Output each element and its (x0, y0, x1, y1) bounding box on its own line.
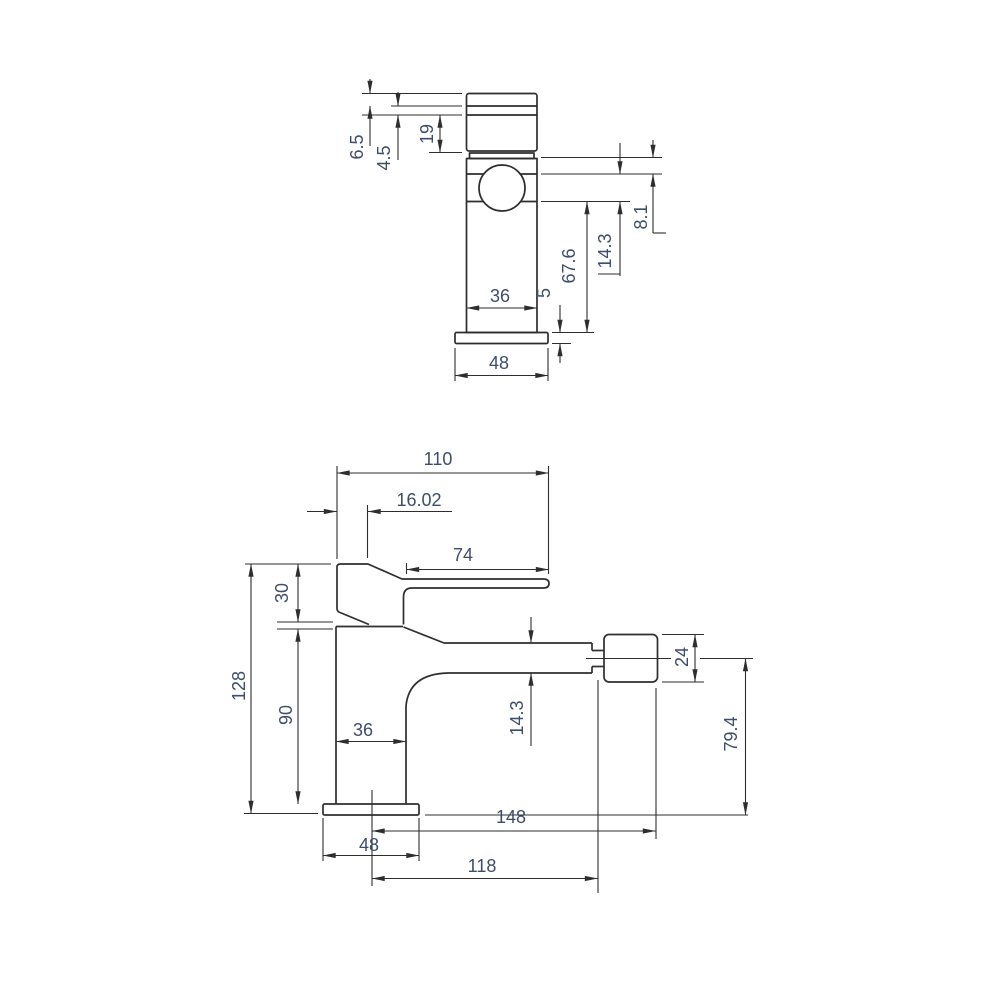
dim-front-spout-to-base: 67.6 (559, 248, 579, 283)
dim-side-outlet-height: 79.4 (721, 716, 741, 751)
handle-cap (467, 94, 538, 152)
dim-front-cap-groove: 4.5 (374, 145, 394, 170)
dim-side-handle-front-offset: 16.02 (396, 490, 441, 510)
dim-side-body-height: 90 (276, 705, 296, 725)
front-view: 6.5 4.5 19 8.1 14.3 67.6 36 5 48 (347, 79, 666, 381)
side-view: 110 16.02 74 30 128 90 36 14.3 24 79.4 1… (229, 449, 753, 893)
front-view-dimensions (362, 79, 666, 381)
dim-front-base-thickness: 5 (534, 288, 554, 298)
dim-side-lever-length: 74 (453, 545, 473, 565)
front-view-outline (455, 94, 548, 344)
dim-front-cap-top: 6.5 (347, 134, 367, 159)
front-view-labels: 6.5 4.5 19 8.1 14.3 67.6 36 5 48 (347, 124, 651, 373)
dim-side-overall-height: 128 (229, 671, 249, 701)
side-view-dimensions (244, 466, 753, 893)
side-base-plate (323, 804, 419, 815)
dim-side-body-depth: 36 (353, 720, 373, 740)
dim-side-overall-reach: 148 (496, 807, 526, 827)
dim-side-overall-reach-top: 110 (424, 449, 453, 469)
dim-side-aerator-diameter: 24 (672, 647, 692, 667)
dim-side-spout-reach: 118 (468, 856, 497, 876)
dim-side-base-depth: 48 (359, 835, 379, 855)
dim-front-base-width: 48 (489, 353, 509, 373)
side-view-outline (323, 564, 671, 815)
faucet-dimension-drawing: 6.5 4.5 19 8.1 14.3 67.6 36 5 48 (0, 0, 1000, 1000)
dim-front-spout-tube: 14.3 (595, 233, 615, 268)
front-base-plate (455, 333, 548, 344)
side-handle-lever (337, 564, 549, 625)
spout-underside (406, 673, 592, 804)
dim-front-body-width: 36 (490, 286, 510, 306)
spout-top (404, 627, 593, 643)
dim-front-cap-height: 19 (417, 124, 437, 144)
side-view-labels: 110 16.02 74 30 128 90 36 14.3 24 79.4 1… (229, 449, 741, 876)
dim-side-spout-tube: 14.3 (507, 700, 527, 735)
technical-drawing-page: 6.5 4.5 19 8.1 14.3 67.6 36 5 48 (0, 0, 1000, 1000)
dim-front-body-to-spout-gap: 8.1 (631, 204, 651, 229)
aerator-front-circle (479, 165, 525, 211)
dim-side-handle-height: 30 (272, 583, 292, 603)
